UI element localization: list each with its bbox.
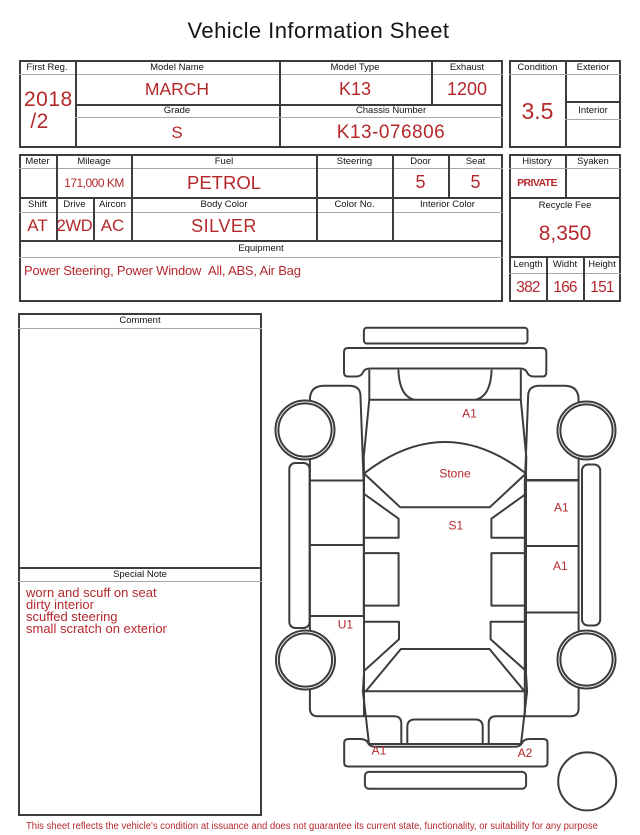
svg-text:A1: A1: [462, 407, 477, 421]
svg-text:A1: A1: [554, 501, 569, 515]
svg-text:A2: A2: [518, 746, 533, 760]
svg-text:U1: U1: [338, 618, 354, 632]
svg-text:A1: A1: [372, 744, 387, 758]
svg-text:S1: S1: [448, 519, 463, 533]
svg-text:A1: A1: [553, 559, 568, 573]
svg-text:Stone: Stone: [439, 467, 471, 481]
